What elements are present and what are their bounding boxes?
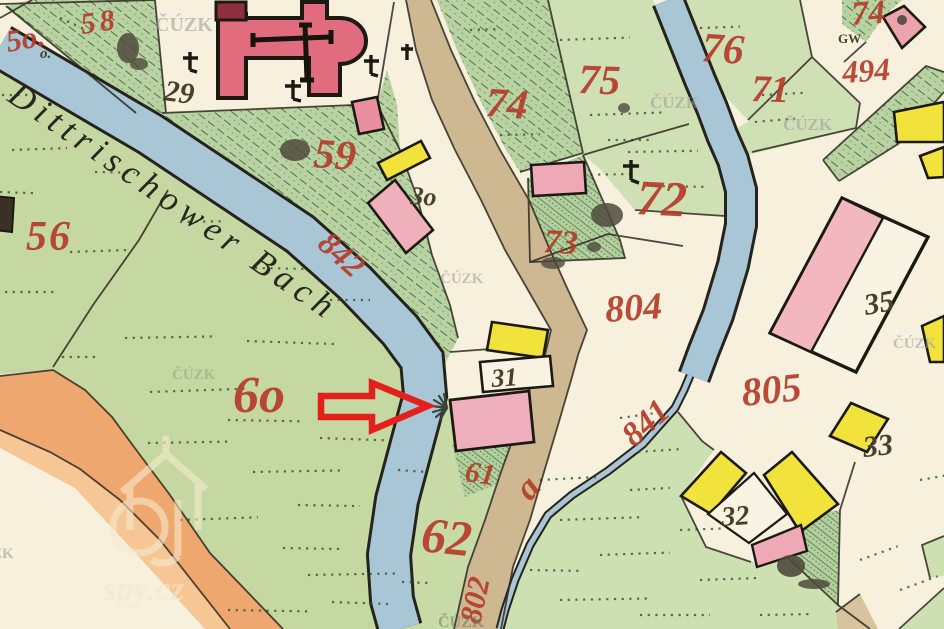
svg-text:73: 73 [542,223,578,262]
svg-text:59: 59 [312,131,357,180]
svg-text:62: 62 [419,506,475,567]
svg-text:56: 56 [26,214,72,260]
svg-text:61: 61 [463,455,497,492]
svg-text:ČÚZK: ČÚZK [893,335,937,352]
svg-text:spy.cz: spy.cz [102,571,185,608]
svg-text:ČÚZK: ČÚZK [650,93,700,112]
svg-text:ČÚZK: ČÚZK [440,270,484,287]
svg-text:805: 805 [739,364,803,415]
svg-text:33: 33 [860,428,894,464]
svg-text:ZK: ZK [0,546,14,562]
svg-text:35: 35 [861,284,897,322]
svg-text:6o: 6o [233,367,285,424]
svg-text:32: 32 [719,500,750,533]
svg-text:o.: o. [40,46,51,62]
svg-text:74: 74 [484,80,529,129]
svg-text:494: 494 [840,51,891,90]
svg-text:72: 72 [635,169,688,228]
svg-text:75: 75 [578,57,622,104]
svg-text:ČÚZK: ČÚZK [172,366,216,383]
svg-text:58: 58 [78,3,120,41]
svg-text:31: 31 [489,362,518,393]
svg-text:71: 71 [751,68,790,111]
svg-text:GW: GW [838,31,861,46]
svg-text:ČÚZK: ČÚZK [783,115,833,134]
svg-text:3o: 3o [409,181,438,212]
svg-text:76: 76 [700,25,745,74]
svg-text:804: 804 [604,285,664,331]
svg-text:ČÚZK: ČÚZK [438,612,485,629]
svg-text:29: 29 [161,74,196,111]
svg-text:74: 74 [850,0,886,33]
svg-text:ČÚZK: ČÚZK [155,12,213,36]
